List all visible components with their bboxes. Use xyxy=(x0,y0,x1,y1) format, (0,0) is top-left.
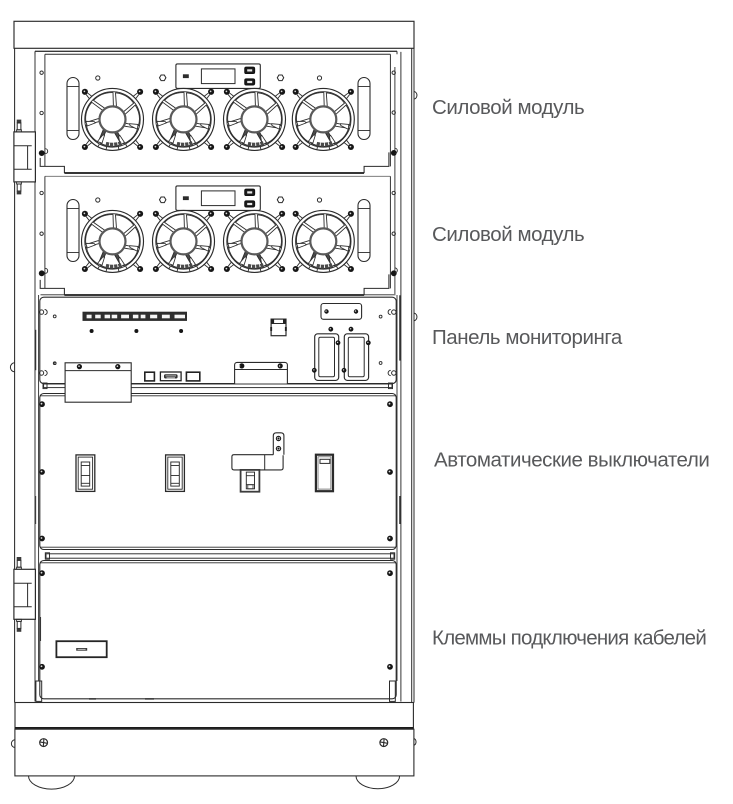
svg-text:Автоматические выключатели: Автоматические выключатели xyxy=(434,449,709,472)
svg-text:Силовой модуль: Силовой модуль xyxy=(432,223,584,246)
svg-text:Панель мониторинга: Панель мониторинга xyxy=(432,326,623,349)
svg-text:Силовой модуль: Силовой модуль xyxy=(432,96,584,119)
svg-text:Клеммы подключения кабелей: Клеммы подключения кабелей xyxy=(432,627,706,650)
